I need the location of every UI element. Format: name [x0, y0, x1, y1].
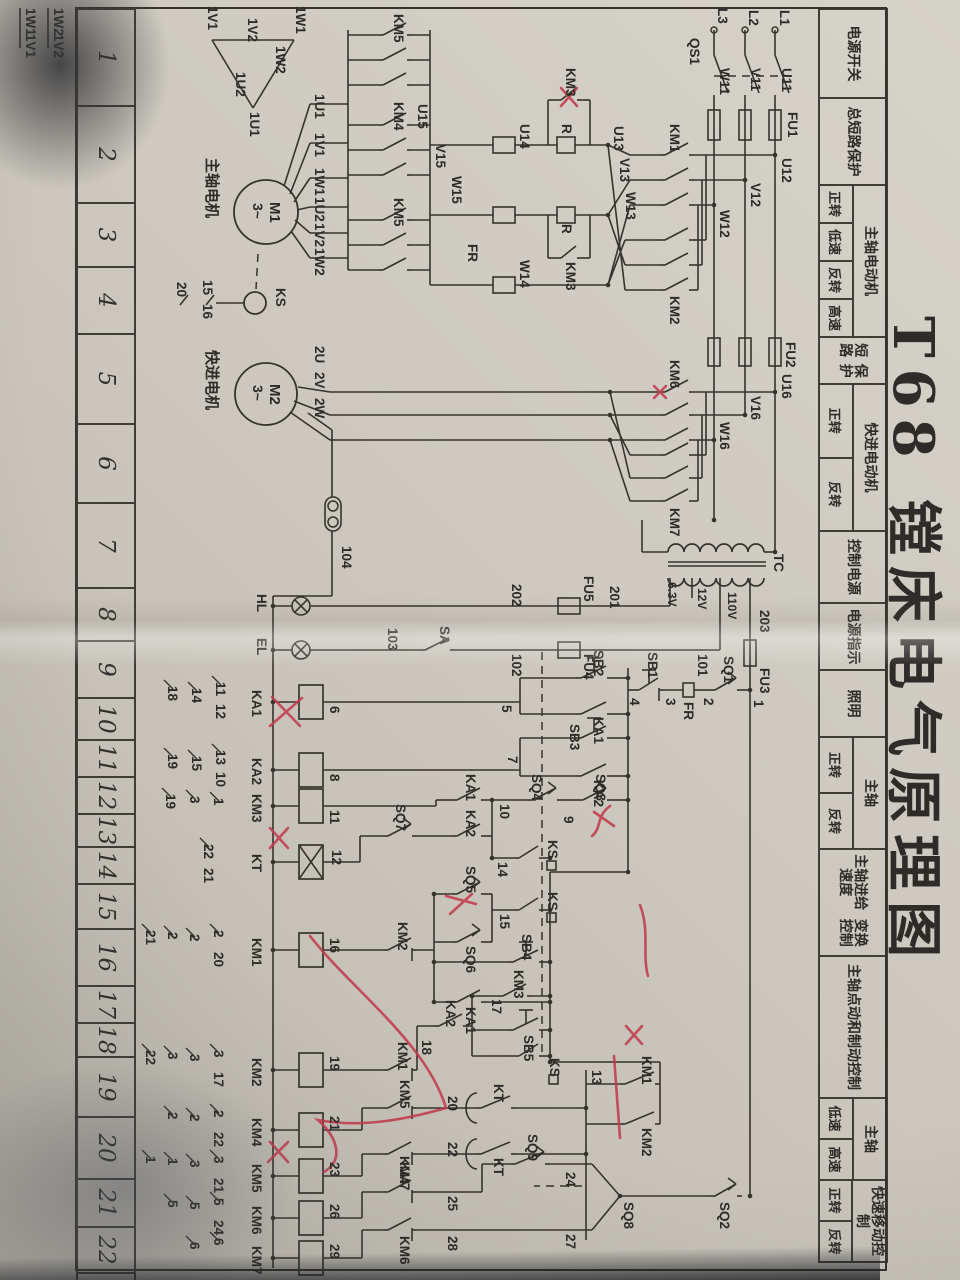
relay-coil: [299, 685, 323, 719]
component-label: 13: [589, 1070, 604, 1086]
component-label: W15: [449, 176, 464, 204]
component-label: 12: [329, 850, 344, 865]
wire: [665, 466, 688, 478]
component-label: 23: [327, 1162, 342, 1178]
component-label: 27: [563, 1234, 578, 1249]
component-label: KM7: [249, 1246, 264, 1275]
junction-dot: [271, 604, 276, 609]
junction-dot: [608, 438, 613, 443]
component-label: 9: [561, 816, 576, 824]
column-number: 13: [76, 813, 136, 848]
junction-dot: [432, 960, 437, 965]
component-label: 7: [505, 756, 520, 764]
component-label: 26: [327, 1204, 342, 1220]
wire: [665, 489, 688, 501]
column-number: 14: [76, 846, 136, 885]
component-label: 103: [385, 628, 400, 651]
component-label: KM4: [249, 1118, 264, 1147]
component-label: R: [559, 124, 574, 134]
component-label: KS: [547, 1058, 562, 1077]
component-label: 20: [445, 1096, 460, 1111]
component-label: 21: [211, 1178, 226, 1194]
component-label: 3: [663, 698, 678, 706]
transformer-winding: [668, 544, 764, 552]
component-label: 15: [497, 914, 512, 930]
column-number: 9: [76, 640, 136, 699]
column-number: 10: [76, 697, 136, 741]
junction-dot: [606, 213, 611, 218]
wire: [665, 428, 688, 440]
resistor-or-heater: [547, 861, 556, 870]
component-label: KM3: [511, 970, 526, 999]
wire: [383, 48, 406, 60]
component-label: 14: [189, 688, 204, 704]
component-label: KA2: [463, 810, 478, 837]
component-label: 17: [489, 999, 504, 1014]
component-label: SQ7: [393, 804, 408, 831]
wire: [383, 233, 406, 245]
component-label: 3~: [250, 203, 266, 219]
junction-dot: [271, 1216, 276, 1221]
component-label: R: [559, 224, 574, 234]
component-label: KM2: [249, 1058, 264, 1087]
wire: [610, 392, 630, 478]
column-number: 19: [76, 1056, 136, 1118]
component-label: KA1: [463, 1007, 478, 1034]
component-label: 20: [174, 282, 189, 297]
component-label: QS1: [687, 38, 702, 66]
component-label: EL: [254, 638, 269, 655]
red-pen-correction: [268, 1142, 288, 1162]
component-label: W14: [517, 260, 532, 288]
component-label: 10: [497, 804, 512, 819]
resistor-or-heater: [557, 137, 575, 153]
component-label: 3: [187, 796, 202, 804]
junction-dot: [712, 438, 717, 443]
column-number: 8: [76, 587, 136, 642]
wire: [519, 898, 538, 910]
component-label: KA2: [249, 758, 264, 785]
component-label: 1U2: [233, 72, 248, 97]
column-number: 16: [76, 928, 136, 987]
junction-dot: [584, 1106, 589, 1111]
component-label: 102: [509, 654, 524, 677]
column-number: 17: [76, 985, 136, 1024]
junction-dot: [608, 390, 613, 395]
component-label: V11: [748, 68, 763, 92]
component-label: V16: [748, 396, 763, 421]
column-number: 4: [76, 266, 136, 335]
component-label: U16: [779, 374, 794, 399]
component-label: W12: [717, 210, 732, 238]
component-label: U14: [517, 124, 532, 149]
component-label: 5: [165, 1200, 180, 1208]
component-label: KM6: [249, 1206, 264, 1235]
relay-coil: [299, 1113, 323, 1147]
component-label: SQ1: [721, 656, 736, 684]
component-label: 2: [211, 1110, 226, 1118]
component-label: SB3: [567, 724, 582, 751]
component-label: 101: [695, 654, 710, 677]
component-label: 19: [327, 1056, 342, 1071]
junction-dot: [271, 804, 276, 809]
resistor-or-heater: [493, 277, 515, 293]
wire: [481, 1142, 510, 1154]
component-label: FR: [681, 702, 696, 720]
component-label: 25: [445, 1196, 460, 1212]
component-label: 14: [495, 862, 510, 878]
component-label: 2: [701, 698, 716, 706]
component-label: 22: [201, 844, 216, 859]
component-label: 1: [165, 1158, 180, 1166]
wire: [284, 104, 310, 186]
junction-dot: [584, 1152, 589, 1157]
component-label: KM5: [391, 198, 406, 227]
component-label: FU1: [785, 112, 800, 138]
junction-dot: [773, 153, 778, 158]
junction-dot: [548, 994, 553, 999]
resistor-or-heater: [493, 207, 515, 223]
junction-dot: [271, 948, 276, 953]
component-label: KM5: [397, 1080, 412, 1109]
component-label: HL: [254, 594, 269, 612]
component-label: FU5: [581, 576, 596, 602]
component-label: KM1: [639, 1056, 654, 1085]
component-label: 1: [751, 700, 766, 708]
component-label: 10: [213, 772, 228, 787]
component-label: 2: [165, 1112, 180, 1120]
component-label: SB2: [591, 650, 606, 676]
red-pen-correction: [626, 1026, 642, 1044]
column-number: 23: [76, 1272, 136, 1280]
component-label: 110V: [725, 592, 739, 619]
column-number: 21: [76, 1178, 136, 1228]
component-label: KM3: [563, 262, 578, 291]
component-label: 快进电机: [203, 350, 221, 410]
wire: [665, 193, 688, 205]
wire: [548, 782, 556, 788]
wire: [297, 207, 310, 210]
schematic-photo: T68 镗床电气原理图 电源开关总短路保护主轴电动机正转低速反转高速短路保护快进…: [0, 0, 960, 1280]
component-label: KM3: [563, 68, 578, 97]
component-label: KS: [545, 892, 560, 911]
component-label: 6: [327, 706, 342, 714]
component-label: 1V1: [205, 6, 220, 31]
component-label: V13: [617, 158, 632, 183]
component-label: FU2: [783, 342, 798, 368]
component-label: KT: [491, 1158, 506, 1177]
component-label: SQ3: [593, 774, 608, 802]
wire: [665, 443, 688, 455]
wire: [665, 228, 688, 240]
component-label: 22: [143, 1050, 158, 1065]
component-label: SQ2: [717, 1202, 732, 1229]
component-label: 1W2: [51, 8, 66, 36]
wire: [383, 163, 406, 175]
junction-dot: [548, 1028, 553, 1033]
component-label: TC: [771, 554, 786, 572]
component-label: 18: [419, 1040, 434, 1056]
wire: [592, 1164, 620, 1196]
wire: [665, 253, 688, 265]
component-label: KM2: [667, 296, 682, 325]
component-label: U13: [611, 126, 626, 151]
component-label: KM5: [249, 1164, 264, 1193]
component-label: 2: [165, 932, 180, 940]
wire: [290, 143, 310, 194]
component-label: KM1: [667, 124, 682, 153]
circuit-drawing: L1L2L3QS1U11V11W11FU1U12V12W12KM1KM2U13V…: [0, 0, 960, 1280]
component-label: 24: [211, 1220, 226, 1236]
junction-dot: [490, 856, 495, 861]
mechanical-link: [256, 254, 258, 289]
wire: [294, 178, 310, 202]
component-label: KM4: [391, 102, 406, 131]
component-label: KM6: [667, 360, 682, 389]
component-label: 15: [200, 280, 215, 296]
component-label: 3: [187, 1160, 202, 1168]
component-label: 1V1: [23, 34, 38, 59]
component-label: 20: [211, 952, 226, 967]
component-label: 21: [143, 930, 158, 946]
component-label: 1W2: [273, 46, 288, 74]
component-label: 3: [211, 1050, 226, 1058]
component-label: L3: [715, 8, 730, 24]
wire: [665, 278, 688, 290]
component-label: SA: [437, 626, 452, 645]
component-label: 11: [327, 810, 342, 825]
component-label: KM7: [667, 508, 682, 537]
component-label: 29: [327, 1244, 342, 1259]
column-number: 20: [76, 1116, 136, 1180]
junction-dot: [626, 774, 631, 779]
component-label: 21: [327, 1116, 342, 1132]
component-label: V12: [748, 183, 763, 207]
component-label: 3: [211, 1156, 226, 1164]
component-label: 4: [627, 698, 642, 706]
column-number: 5: [76, 333, 136, 425]
component-label: 主轴电机: [203, 158, 221, 218]
junction-dot: [608, 413, 613, 418]
component-label: 1U2: [312, 197, 327, 222]
wire: [291, 231, 310, 258]
component-label: KA1: [249, 690, 264, 717]
column-number: 22: [76, 1226, 136, 1274]
junction-dot: [773, 390, 778, 395]
component-label: 1W1: [293, 6, 308, 34]
component-label: 18: [165, 686, 180, 702]
resistor-or-heater: [683, 683, 694, 697]
junction-dot: [712, 518, 717, 523]
component-label: KA1: [591, 717, 606, 744]
component-label: KT: [491, 1084, 506, 1103]
junction-dot: [748, 688, 753, 693]
component-label: 16: [327, 938, 342, 954]
junction-dot: [271, 1256, 276, 1261]
component-label: L1: [777, 10, 792, 26]
component-label: FR: [465, 244, 480, 262]
junction-dot: [470, 994, 475, 999]
component-label: 2: [187, 1114, 202, 1122]
junction-dot: [271, 648, 276, 653]
junction-dot: [626, 712, 631, 717]
junction-dot: [271, 860, 276, 865]
column-number-strip: 1234567891011121314151617181920212223: [76, 8, 136, 1280]
connector-pin: [328, 501, 338, 511]
component-label: 3: [187, 1054, 202, 1062]
component-label: SB5: [521, 1035, 536, 1062]
wire: [665, 168, 688, 180]
component-label: 13: [213, 750, 228, 766]
junction-dot: [743, 413, 748, 418]
relay-coil: [299, 1053, 323, 1087]
component-label: SQ9: [525, 1134, 540, 1161]
junction-dot: [432, 892, 437, 897]
resistor-or-heater: [557, 207, 575, 223]
component-label: 5: [187, 1202, 202, 1210]
junction-dot: [712, 203, 717, 208]
red-pen-correction: [592, 806, 614, 836]
component-label: 12: [213, 704, 228, 719]
component-label: W16: [717, 422, 732, 450]
component-label: M1: [266, 202, 283, 223]
red-pen-correction: [446, 894, 476, 914]
junction-dot: [606, 283, 611, 288]
component-label: KT: [249, 854, 264, 873]
resistor-or-heater: [547, 913, 556, 922]
component-label: 1: [143, 1156, 158, 1164]
junction-dot: [271, 1128, 276, 1133]
component-label: KM1: [395, 1042, 410, 1071]
component-label: SQ5: [463, 866, 478, 894]
relay-coil: [299, 789, 323, 823]
wire: [519, 846, 538, 858]
component-label: KA2: [443, 1000, 458, 1027]
component-label: 15: [189, 756, 204, 772]
component-label: 19: [165, 754, 180, 769]
component-label: 104: [339, 546, 354, 569]
component-label: 5: [499, 705, 514, 713]
junction-dot: [548, 1000, 553, 1005]
component-label: SQ6: [463, 946, 478, 974]
junction-dot: [626, 676, 631, 681]
junction-dot: [490, 798, 495, 803]
wire: [625, 1112, 654, 1124]
component-label: KM3: [249, 794, 264, 823]
wire: [388, 1142, 411, 1154]
component-label: 22: [445, 1142, 460, 1157]
component-label: 3: [165, 1052, 180, 1060]
component-label: 202: [509, 584, 524, 607]
component-label: 6: [187, 1242, 202, 1250]
motor-or-relay-circle: [244, 292, 266, 314]
column-number: 2: [76, 105, 136, 204]
red-pen-correction: [614, 905, 648, 1138]
wire: [592, 1196, 620, 1230]
component-label: W11: [717, 68, 732, 96]
column-number: 18: [76, 1022, 136, 1058]
component-label: 2U: [312, 346, 327, 363]
component-label: 2W: [312, 398, 327, 419]
component-label: 22: [211, 1132, 226, 1147]
component-label: KS: [545, 840, 560, 859]
wire: [383, 138, 406, 150]
junction-dot: [271, 1068, 276, 1073]
wire: [581, 702, 606, 714]
component-label: 2V: [312, 372, 327, 389]
component-label: 3~: [250, 385, 266, 401]
component-label: 201: [607, 586, 622, 609]
component-label: 21: [201, 868, 216, 884]
component-label: SB4: [519, 934, 534, 961]
component-label: W13: [623, 192, 638, 220]
relay-coil: [299, 753, 323, 787]
component-label: 6.3V: [665, 582, 679, 607]
junction-dot: [743, 178, 748, 183]
component-label: M2: [266, 384, 283, 405]
component-label: 1W2: [312, 248, 327, 276]
junction-dot: [626, 870, 631, 875]
component-label: 12V: [695, 588, 709, 609]
junction-dot: [271, 1174, 276, 1179]
component-label: 24: [563, 1172, 578, 1188]
component-label: SQ8: [621, 1202, 636, 1230]
component-label: 5: [211, 1198, 226, 1206]
component-label: 203: [757, 610, 772, 633]
component-label: KM2: [639, 1128, 654, 1157]
column-number: 12: [76, 776, 136, 815]
fuse: [325, 497, 341, 531]
column-number: 1: [76, 8, 136, 107]
component-label: SB1: [645, 652, 660, 679]
component-label: 2: [211, 930, 226, 938]
wire: [383, 73, 406, 85]
component-label: KM5: [391, 14, 406, 43]
wire: [472, 924, 480, 930]
component-label: U12: [779, 158, 794, 183]
junction-dot: [271, 768, 276, 773]
component-label: FU3: [757, 668, 772, 694]
component-label: L2: [746, 10, 761, 26]
resistor-or-heater: [493, 137, 515, 153]
component-label: 1V2: [245, 18, 260, 42]
wire: [561, 246, 576, 258]
component-label: 1U1: [312, 94, 327, 119]
junction-dot: [432, 1000, 437, 1005]
component-label: 1W1: [23, 8, 38, 36]
component-label: 1W1: [312, 168, 327, 196]
schematic-sheet: T68 镗床电气原理图 电源开关总短路保护主轴电动机正转低速反转高速短路保护快进…: [0, 0, 960, 1280]
component-label: V15: [433, 144, 448, 169]
wire: [383, 258, 406, 270]
column-number: 3: [76, 202, 136, 268]
component-label: U11: [779, 68, 794, 93]
junction-dot: [626, 736, 631, 741]
component-label: KS: [273, 288, 288, 307]
component-label: 28: [445, 1236, 460, 1252]
relay-coil: [299, 1159, 323, 1193]
column-number: 7: [76, 502, 136, 589]
component-label: 19: [163, 794, 178, 809]
relay-coil: [299, 1201, 323, 1235]
component-label: 1V2: [51, 34, 66, 58]
sheet-border: [76, 8, 886, 1270]
junction-dot: [618, 1194, 623, 1199]
column-number: 15: [76, 883, 136, 930]
component-label: U15: [415, 104, 430, 129]
component-label: 17: [211, 1072, 226, 1087]
component-label: KA1: [463, 774, 478, 801]
